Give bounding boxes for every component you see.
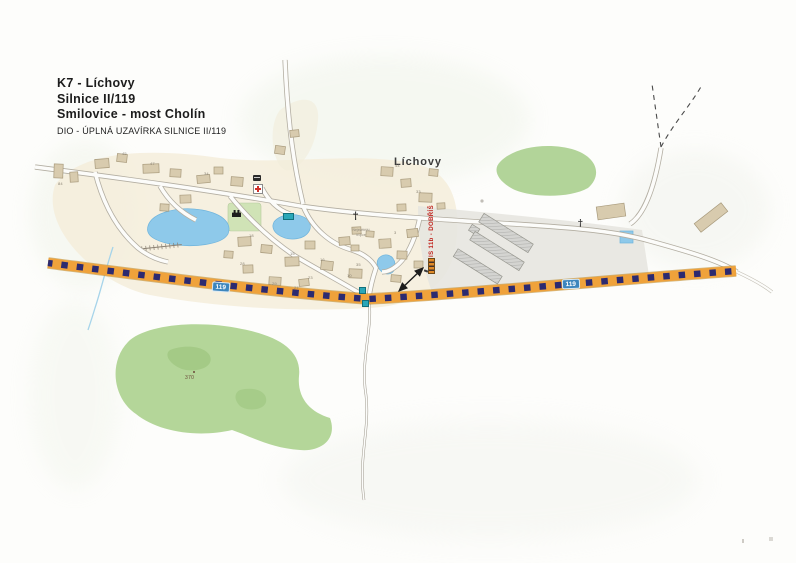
building — [224, 251, 233, 259]
building — [596, 203, 626, 220]
house-number: 29 — [272, 281, 277, 286]
house-number: 23 — [308, 275, 313, 280]
smudge — [480, 199, 483, 202]
house-number: 10 — [347, 273, 352, 278]
building — [290, 130, 300, 138]
chapel-label: Nejsvětější trojice — [338, 228, 384, 237]
house-number: 28 — [240, 261, 245, 266]
building — [261, 245, 273, 254]
building — [274, 145, 285, 154]
building — [694, 203, 728, 233]
junction-sign-marker — [359, 287, 366, 294]
house-number: 27 — [294, 285, 299, 290]
building — [414, 261, 423, 268]
title-line-1: K7 - Líchovy — [57, 76, 226, 92]
building — [70, 172, 79, 182]
road-badge-119-left: 119 — [212, 281, 230, 293]
detour-sign-label: IS 11b - DOBŘÍŠ — [429, 207, 435, 257]
building — [285, 257, 299, 266]
title-subtitle: DIO - ÚPLNÁ UZAVÍRKA SILNICE II/119 — [57, 125, 226, 137]
building — [170, 169, 181, 178]
road-continuation — [737, 272, 772, 292]
building — [397, 204, 406, 211]
building — [407, 228, 419, 237]
house-number: 16 — [320, 257, 325, 262]
title-line-3: Smilovice - most Cholín — [57, 107, 226, 123]
house-number: 35 — [356, 262, 361, 267]
building — [305, 241, 315, 249]
building — [437, 203, 445, 209]
building — [243, 265, 253, 273]
building — [160, 204, 169, 211]
house-number: 44 — [395, 163, 400, 168]
building — [214, 167, 223, 174]
church-cross-icon: † — [353, 211, 358, 222]
road-badge-119-right: 119 — [562, 279, 580, 290]
title-line-2: Silnice II/119 — [57, 92, 226, 108]
building — [401, 179, 412, 188]
building — [54, 164, 63, 178]
building — [397, 251, 407, 259]
house-number: 45 — [122, 151, 127, 156]
building — [429, 169, 439, 177]
building — [379, 239, 391, 249]
building — [339, 237, 351, 246]
bus-stop-marker — [283, 213, 294, 220]
footpaths-dashed — [652, 84, 702, 147]
house-number: 15 — [290, 251, 295, 256]
building — [391, 275, 402, 283]
elevation-label: 370 — [185, 375, 194, 381]
house-number: 47 — [150, 161, 155, 166]
house-number: 34 — [204, 171, 209, 176]
elevation-dot — [193, 371, 195, 373]
scanned-map-page: K7 - Líchovy Silnice II/119 Smilovice - … — [0, 0, 796, 563]
house-number: 84 — [58, 181, 63, 186]
scan-artifact — [769, 537, 773, 541]
scan-artifact — [742, 539, 744, 543]
village-label: Líchovy — [394, 156, 442, 168]
house-number: 3 — [394, 230, 396, 235]
building — [95, 159, 110, 169]
building — [351, 245, 359, 251]
chapel-label-line2: trojice — [338, 233, 384, 238]
title-block: K7 - Líchovy Silnice II/119 Smilovice - … — [57, 76, 226, 137]
building — [180, 195, 191, 203]
house-number: 33 — [416, 189, 421, 194]
wayside-cross-icon: † — [578, 219, 583, 229]
building — [231, 177, 244, 187]
building — [381, 167, 393, 177]
medical-cross-bar — [255, 188, 261, 190]
bus-poi-icon — [253, 175, 261, 181]
building — [238, 237, 251, 247]
junction-sign-marker — [362, 300, 369, 307]
medical-cross-icon — [253, 184, 263, 194]
barrier-icon — [428, 258, 435, 274]
south-minor-road — [362, 299, 369, 500]
building — [419, 193, 432, 202]
house-number: 18 — [249, 233, 254, 238]
